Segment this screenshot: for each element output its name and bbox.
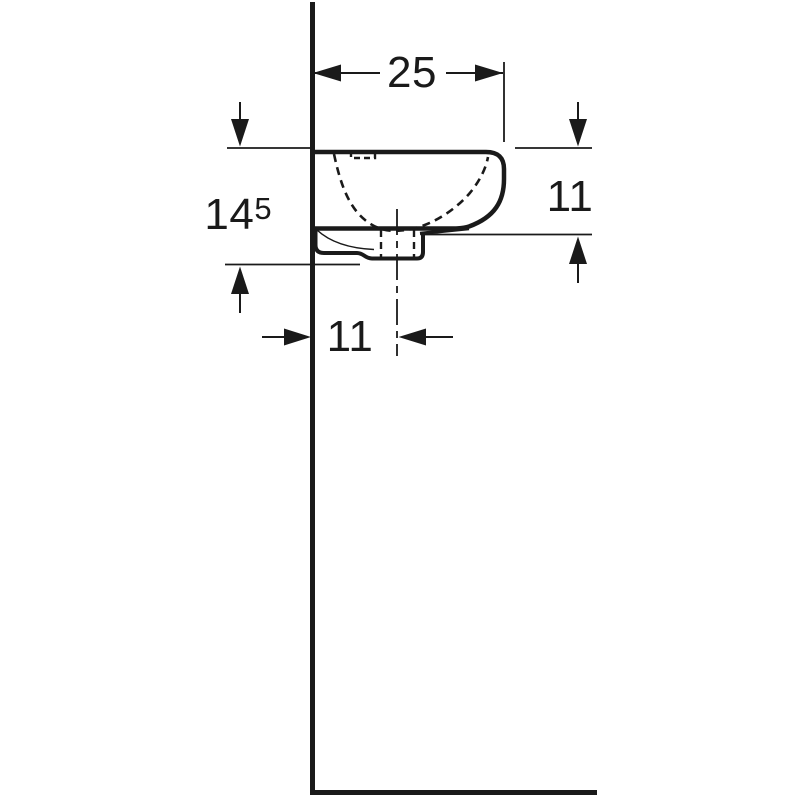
dim-label-left-height: 145 — [204, 193, 271, 237]
arrowhead-up-icon — [569, 237, 587, 265]
dim-label-bottom-offset: 11 — [327, 315, 374, 359]
arrowhead-left-icon — [313, 65, 341, 82]
trap-inner-curve — [317, 230, 374, 250]
arrowhead-up-icon — [231, 267, 249, 295]
arrowhead-down-icon — [569, 119, 587, 147]
dim-label-left-height-main: 14 — [204, 190, 254, 239]
arrowhead-left-icon — [399, 329, 427, 346]
arrowhead-right-icon — [475, 65, 503, 82]
basin-outline — [313, 152, 504, 229]
arrowhead-down-icon — [231, 119, 249, 147]
dimension-drawing-canvas: 25 145 11 11 — [0, 0, 800, 800]
basin-bowl-hidden-edge — [334, 154, 488, 231]
arrowhead-right-icon — [284, 329, 311, 346]
dim-label-right-height: 11 — [547, 175, 594, 219]
dim-label-left-height-superscript: 5 — [254, 191, 271, 226]
trap-cover-outline — [316, 228, 424, 259]
dim-label-top-width: 25 — [387, 51, 437, 95]
drawing-linework — [0, 0, 800, 800]
